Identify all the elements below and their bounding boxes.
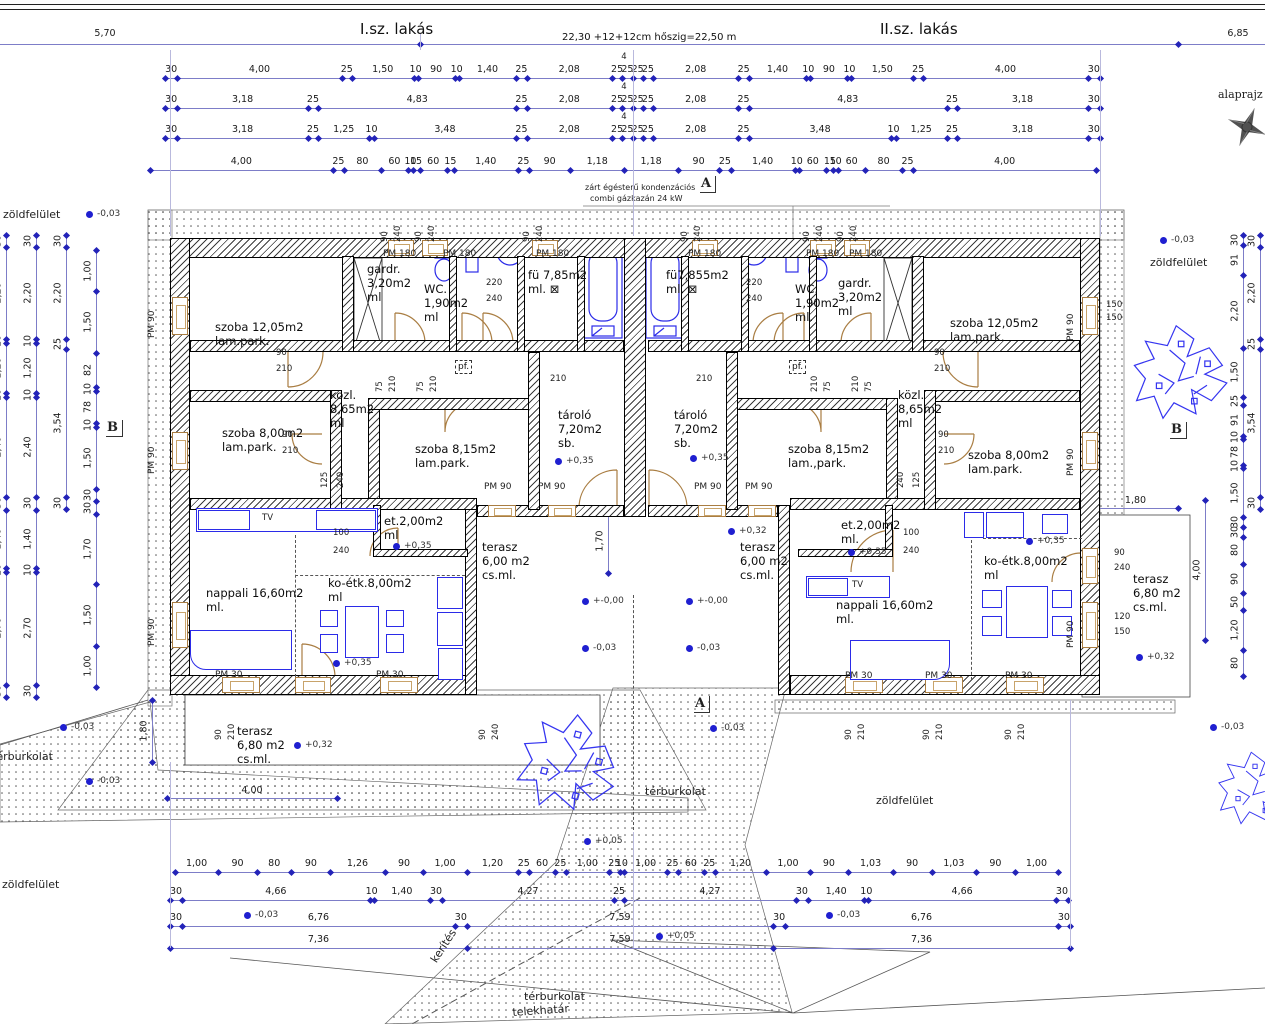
window bbox=[172, 602, 188, 648]
dim-label: 4,66 bbox=[265, 886, 286, 897]
room-label-line: ml bbox=[328, 590, 412, 604]
dim-label: 60 bbox=[427, 156, 439, 167]
extension-line bbox=[170, 762, 171, 948]
parapet-label: PM 30 bbox=[845, 671, 873, 681]
paving-strip-right bbox=[775, 700, 1175, 713]
parapet-label: PM 180 bbox=[536, 249, 569, 259]
elevation-marker bbox=[656, 933, 663, 940]
room-label-line: 6,00 m2 bbox=[482, 554, 530, 568]
room-label-line: terasz bbox=[1133, 572, 1181, 586]
dim-label: 25 bbox=[515, 94, 527, 105]
window bbox=[548, 505, 576, 517]
dim-label: 15 bbox=[444, 156, 456, 167]
dim-label: 10 bbox=[366, 886, 378, 897]
room-label-line: 6,80 m2 bbox=[1133, 586, 1181, 600]
elevation-value: +0,35 bbox=[344, 658, 372, 668]
dim-label: 1,40 bbox=[477, 64, 498, 75]
dim-label: 4,00 bbox=[231, 156, 252, 167]
small-dim-label: 90 bbox=[938, 430, 949, 440]
small-dim-label: 100 bbox=[333, 528, 349, 538]
room-label-line: 7,20m2 bbox=[674, 422, 718, 436]
room-label: nappali 16,60m2ml. bbox=[206, 586, 303, 614]
room-label-line: ml bbox=[330, 416, 374, 430]
dim-label: 90 bbox=[823, 858, 835, 869]
room-label: tároló7,20m2sb. bbox=[558, 408, 602, 450]
dim-line bbox=[152, 700, 153, 762]
parapet-label: PM 90 bbox=[1066, 448, 1076, 476]
site-label: zöldfelület bbox=[2, 878, 59, 891]
dim-label: 30 bbox=[170, 912, 182, 923]
room-label-line: szoba 8,00m2 bbox=[968, 448, 1049, 462]
small-dim-label: 210 bbox=[857, 724, 867, 740]
elevation-marker bbox=[584, 838, 591, 845]
room-label-line: szoba 8,15m2 bbox=[788, 442, 869, 456]
window bbox=[748, 505, 776, 517]
room-label-line: ml bbox=[424, 310, 468, 324]
parapet-label: PM 30 bbox=[215, 670, 243, 680]
elevation-marker bbox=[582, 598, 589, 605]
dim-label: 3,48 bbox=[809, 124, 830, 135]
dining-table bbox=[1006, 586, 1048, 638]
parapet-label: PM 90 bbox=[1066, 313, 1076, 341]
site-label: térburkolat bbox=[524, 990, 585, 1003]
dim-label: 3,54 bbox=[53, 412, 64, 433]
chair bbox=[320, 634, 338, 653]
dim-label: 10 bbox=[1230, 431, 1241, 443]
elevation-value: +0,35 bbox=[404, 541, 432, 551]
room-label-line: ml. bbox=[836, 612, 933, 626]
room-label-line: közl. bbox=[330, 388, 374, 402]
chair bbox=[1052, 590, 1072, 608]
dim-label: 7,36 bbox=[911, 934, 932, 945]
parapet-label: PM 180 bbox=[383, 249, 416, 259]
small-dim-label: 240 bbox=[393, 226, 403, 242]
room-label-line: ml bbox=[898, 416, 942, 430]
dim-label: 30 bbox=[1230, 234, 1241, 246]
dim-label: 10 bbox=[0, 389, 4, 401]
dim-label: 1,50 bbox=[1230, 362, 1241, 383]
elevation-marker bbox=[555, 458, 562, 465]
dim-label: 4,00 bbox=[994, 156, 1015, 167]
dim-label: 10 bbox=[83, 383, 94, 395]
small-dim-label: 150 bbox=[1106, 313, 1122, 323]
window bbox=[488, 505, 516, 517]
dim-label: 30 bbox=[165, 124, 177, 135]
small-dim-label: 220 bbox=[486, 278, 502, 288]
room-label-line: 6,00 m2 bbox=[740, 554, 788, 568]
small-dim-label: 100 bbox=[903, 528, 919, 538]
dim-label: 30 bbox=[1058, 912, 1070, 923]
dim-label: 25 bbox=[737, 124, 749, 135]
room-label-line: fü7,855m2 bbox=[666, 268, 729, 282]
room-label-line: 8,65m2 bbox=[898, 402, 942, 416]
insulation-band-top bbox=[148, 210, 1124, 240]
window bbox=[698, 505, 726, 517]
dim-label: 1,70 bbox=[595, 530, 606, 551]
parapet-label: PM 90 bbox=[745, 482, 773, 492]
dim-label: 50 bbox=[1230, 596, 1241, 608]
dim-label: 80 bbox=[1230, 657, 1241, 669]
dim-label: 10 bbox=[23, 389, 34, 401]
dim-label: 25 bbox=[1230, 395, 1241, 407]
dim-label: 90 bbox=[305, 858, 317, 869]
dim-label: 2,08 bbox=[559, 94, 580, 105]
dim-label: 90 bbox=[430, 64, 442, 75]
small-dim-label: 75 bbox=[416, 381, 426, 392]
room-label: gardr.3,20m2ml bbox=[367, 262, 411, 304]
room-label-line: lam.park. bbox=[950, 330, 1039, 344]
dim-label: 1,20 bbox=[730, 858, 751, 869]
tv-shelf bbox=[198, 510, 250, 530]
dim-label: 82 bbox=[83, 364, 94, 376]
elevation-value: -0,03 bbox=[1171, 235, 1194, 245]
dim-label: 1,00 bbox=[577, 858, 598, 869]
dim-label: 7,59 bbox=[609, 934, 630, 945]
dim-label: 25 bbox=[912, 64, 924, 75]
dim-label: 4,83 bbox=[837, 94, 858, 105]
stove bbox=[438, 648, 463, 680]
room-label-line: terasz bbox=[237, 724, 285, 738]
dim-label: 78 bbox=[83, 401, 94, 413]
elevation-marker bbox=[582, 645, 589, 652]
dim-label: 30 bbox=[455, 912, 467, 923]
dim-label: 25 bbox=[1247, 338, 1258, 350]
room-label-line: cs.ml. bbox=[1133, 600, 1181, 614]
elevation-marker bbox=[686, 598, 693, 605]
dim-label: 4,27 bbox=[517, 886, 538, 897]
room-label-line: cs.ml. bbox=[740, 568, 788, 582]
fridge bbox=[986, 512, 1024, 538]
dim-label: 90 bbox=[989, 858, 1001, 869]
dim-label: 4,27 bbox=[699, 886, 720, 897]
dim-label: 25 bbox=[613, 886, 625, 897]
wall bbox=[624, 238, 646, 517]
sink-cabinet bbox=[964, 512, 984, 538]
room-label-line: ko-étk.8,00m2 bbox=[984, 554, 1068, 568]
chair bbox=[386, 634, 404, 653]
small-dim-label: 210 bbox=[276, 364, 292, 374]
dim-label: 10 bbox=[0, 564, 4, 576]
room-label-line: tároló bbox=[674, 408, 718, 422]
dim-label: 60 bbox=[807, 156, 819, 167]
small-dim-label: 240 bbox=[336, 472, 346, 488]
dim-label: 25 bbox=[642, 64, 654, 75]
small-dim-label: 240 bbox=[491, 724, 501, 740]
dim-label: 1,50 bbox=[1230, 482, 1241, 503]
dim-chain-line bbox=[170, 948, 1070, 949]
parapet-label: PM 180 bbox=[849, 249, 882, 259]
chair bbox=[982, 616, 1002, 636]
dim-note: 4 bbox=[621, 112, 626, 122]
small-dim-label: 90 bbox=[922, 729, 932, 740]
sofa bbox=[190, 630, 292, 670]
dim-label: 30 bbox=[1247, 235, 1258, 247]
site-label: zöldfelület bbox=[876, 794, 933, 807]
dim-label: 2,20 bbox=[1247, 283, 1258, 304]
dim-label: 25 bbox=[515, 64, 527, 75]
dim-label: 1,40 bbox=[826, 886, 847, 897]
dim-chain-line bbox=[36, 235, 37, 697]
room-label-line: ml bbox=[367, 290, 411, 304]
dim-label: 1,20 bbox=[482, 858, 503, 869]
section-marker: B bbox=[106, 420, 123, 437]
window bbox=[172, 432, 188, 470]
elevation-value: +0,35 bbox=[701, 453, 729, 463]
dim-label: 25 bbox=[703, 858, 715, 869]
wall bbox=[342, 256, 354, 352]
insulation-band-right bbox=[1100, 210, 1124, 515]
dim-label: 30 bbox=[1088, 64, 1100, 75]
small-dim-label: 90 bbox=[478, 729, 488, 740]
dim-label: 25 bbox=[518, 858, 530, 869]
dim-label: 10 bbox=[83, 419, 94, 431]
room-label: terasz6,80 m2cs.ml. bbox=[1133, 572, 1181, 614]
small-dim-label: 125 bbox=[912, 472, 922, 488]
dim-label: 90 bbox=[693, 156, 705, 167]
small-dim-label: 240 bbox=[746, 294, 762, 304]
dim-label: 30 bbox=[23, 685, 34, 697]
elevation-marker bbox=[86, 211, 93, 218]
wall bbox=[886, 398, 898, 510]
dim-label: 25 bbox=[667, 858, 679, 869]
parapet-label: PM 90 bbox=[538, 482, 566, 492]
elevation-marker bbox=[1136, 654, 1143, 661]
room-label: WC.1,90m2ml. bbox=[795, 282, 839, 324]
window bbox=[1082, 432, 1098, 470]
small-dim-label: 90 bbox=[680, 231, 690, 242]
room-label-line: WC. bbox=[795, 282, 839, 296]
dim-label: 91 bbox=[1230, 414, 1241, 426]
wall bbox=[928, 390, 1080, 402]
dim-label: 30 bbox=[430, 886, 442, 897]
dim-label: 1,18 bbox=[641, 156, 662, 167]
dim-label: 90 bbox=[398, 858, 410, 869]
dim-label: 1,40 bbox=[475, 156, 496, 167]
dim-label: 10 bbox=[860, 886, 872, 897]
dim-label: 25 bbox=[946, 124, 958, 135]
elevation-value: +0,32 bbox=[739, 526, 767, 536]
dim-label: 1,40 bbox=[0, 528, 4, 549]
room-label-line: lam.park. bbox=[415, 456, 496, 470]
dim-label: 10 bbox=[830, 156, 842, 167]
dim-label: 90 bbox=[232, 858, 244, 869]
elevation-marker bbox=[690, 455, 697, 462]
room-label-line: 7,20m2 bbox=[558, 422, 602, 436]
room-label-line: lam.park. bbox=[968, 462, 1049, 476]
dim-label: 10 bbox=[887, 124, 899, 135]
room-label-line: 3,20m2 bbox=[367, 276, 411, 290]
dim-label: 10 bbox=[843, 64, 855, 75]
small-dim-label: 210 bbox=[227, 724, 237, 740]
room-label: et.2,00m2ml bbox=[384, 514, 443, 542]
window bbox=[1082, 602, 1098, 648]
dim-label: 10 bbox=[1230, 460, 1241, 472]
small-dim-label: 240 bbox=[427, 226, 437, 242]
dim-chain-line bbox=[96, 250, 97, 687]
small-dim-label: 150 bbox=[1114, 627, 1130, 637]
dim-chain-line bbox=[170, 900, 1068, 901]
elevation-marker bbox=[333, 660, 340, 667]
room-label: fü 7,85m2ml. ⊠ bbox=[528, 268, 587, 296]
elevation-value: -0,03 bbox=[837, 910, 860, 920]
room-label-line: 8,65m2 bbox=[330, 402, 374, 416]
dim-label: 30 bbox=[773, 912, 785, 923]
dim-label: 2,40 bbox=[0, 437, 4, 458]
wall bbox=[368, 398, 540, 410]
dim-label: 30 bbox=[1247, 497, 1258, 509]
dim-label: 25 bbox=[307, 124, 319, 135]
room-label-line: közl. bbox=[898, 388, 942, 402]
dim-label: 2,20 bbox=[23, 283, 34, 304]
dim-label: 4,00 bbox=[241, 785, 262, 796]
small-dim-label: 210 bbox=[429, 376, 439, 392]
elevation-value: +0,35 bbox=[1037, 536, 1065, 546]
room-label-line: ml bbox=[838, 304, 882, 318]
elevation-marker bbox=[728, 528, 735, 535]
room-label-line: nappali 16,60m2 bbox=[836, 598, 933, 612]
dim-label: 25 bbox=[946, 94, 958, 105]
section-marker: A bbox=[694, 696, 710, 713]
elevation-value: +-0,00 bbox=[697, 596, 728, 606]
dim-label: 1,00 bbox=[83, 260, 94, 281]
elevation-value: +-0,00 bbox=[593, 596, 624, 606]
dim-label: 30 bbox=[83, 502, 94, 514]
dim-label: 90 bbox=[823, 64, 835, 75]
wall bbox=[912, 256, 924, 352]
room-label: terasz6,00 m2cs.ml. bbox=[482, 540, 530, 582]
dim-label: 1,00 bbox=[1026, 858, 1047, 869]
dim-label: 30 bbox=[0, 497, 4, 509]
dim-label: 4,83 bbox=[407, 94, 428, 105]
dim-label: 25 bbox=[517, 156, 529, 167]
dim-label: 60 bbox=[846, 156, 858, 167]
small-dim-label: 90 bbox=[380, 231, 390, 242]
small-dim-label: 240 bbox=[896, 472, 906, 488]
room-label-line: ko-étk.8,00m2 bbox=[328, 576, 412, 590]
room-label: terasz6,00 m2cs.ml. bbox=[740, 540, 788, 582]
dim-label: 91 bbox=[1230, 254, 1241, 266]
small-dim-label: 90 bbox=[1114, 548, 1125, 558]
room-label-line: cs.ml. bbox=[237, 752, 285, 766]
small-dim-label: 210 bbox=[388, 376, 398, 392]
dim-label: 1,26 bbox=[347, 858, 368, 869]
section-marker: A bbox=[700, 176, 716, 193]
dim-label: 30 bbox=[0, 685, 4, 697]
dim-label: 30 bbox=[1056, 886, 1068, 897]
dim-label: 25 bbox=[642, 124, 654, 135]
room-label: fü7,855m2ml. ⊠ bbox=[666, 268, 729, 296]
small-dim-label: 90 bbox=[522, 231, 532, 242]
elevation-marker bbox=[1026, 538, 1033, 545]
niche-label: pf. bbox=[455, 360, 472, 374]
dim-label: 25 bbox=[738, 64, 750, 75]
small-dim-label: 210 bbox=[851, 376, 861, 392]
elevation-value: -0,03 bbox=[697, 643, 720, 653]
room-label-line: 6,80 m2 bbox=[237, 738, 285, 752]
parapet-label: PM 30 bbox=[1005, 671, 1033, 681]
dim-label: 25 bbox=[515, 124, 527, 135]
small-dim-label: 210 bbox=[1017, 724, 1027, 740]
dim-label: 1,80 bbox=[1125, 495, 1146, 506]
small-dim-label: 210 bbox=[550, 374, 566, 384]
room-label-line: sb. bbox=[558, 436, 602, 450]
dim-label: 1,00 bbox=[635, 858, 656, 869]
dim-label: 6,76 bbox=[308, 912, 329, 923]
dim-label: 30 bbox=[23, 497, 34, 509]
elevation-value: +0,35 bbox=[566, 456, 594, 466]
elevation-marker bbox=[848, 549, 855, 556]
dim-label: 30 bbox=[1230, 526, 1241, 538]
small-dim-label: 150 bbox=[1106, 300, 1122, 310]
dim-label: 2,08 bbox=[559, 124, 580, 135]
room-label: szoba 8,15m2lam.park. bbox=[415, 442, 496, 470]
room-label-line: ml. bbox=[841, 532, 900, 546]
window bbox=[295, 677, 331, 693]
room-label-line: terasz bbox=[740, 540, 788, 554]
dim-label: 1,03 bbox=[860, 858, 881, 869]
window bbox=[1082, 297, 1098, 335]
small-dim-label: 90 bbox=[1004, 729, 1014, 740]
dim-label: 90 bbox=[906, 858, 918, 869]
dim-label: 3,18 bbox=[232, 124, 253, 135]
dim-chain-line bbox=[170, 926, 1070, 927]
dim-label: 60 bbox=[388, 156, 400, 167]
dim-label: 10 bbox=[616, 858, 628, 869]
small-dim-label: 210 bbox=[934, 364, 950, 374]
parapet-label: PM 180 bbox=[443, 249, 476, 259]
parapet-label: PM 30 bbox=[376, 670, 404, 680]
parapet-label: PM 90 bbox=[147, 446, 157, 474]
floor-plan-canvas: 5,70 I.sz. lakás 22,30 +12+12cm hőszig=2… bbox=[0, 0, 1265, 1024]
parapet-label: PM 180 bbox=[806, 249, 839, 259]
dim-label: 3,18 bbox=[232, 94, 253, 105]
small-dim-label: 125 bbox=[320, 472, 330, 488]
room-label: közl.8,65m2ml bbox=[330, 388, 374, 430]
dim-label: 10 bbox=[802, 64, 814, 75]
elevation-value: -0,03 bbox=[71, 722, 94, 732]
room-label-line: szoba 12,05m2 bbox=[950, 316, 1039, 330]
dim-label: 7,59 bbox=[609, 912, 630, 923]
dim-label: 1,50 bbox=[83, 312, 94, 333]
room-label: et.2,00m2ml. bbox=[841, 518, 900, 546]
wall bbox=[465, 505, 477, 695]
room-label: nappali 16,60m2ml. bbox=[836, 598, 933, 626]
room-label-line: tároló bbox=[558, 408, 602, 422]
dim-label: 10 bbox=[410, 64, 422, 75]
parapet-label: PM 90 bbox=[147, 310, 157, 338]
dim-label: 1,70 bbox=[83, 538, 94, 559]
small-dim-label: 220 bbox=[746, 278, 762, 288]
room-label-line: ml. bbox=[206, 600, 303, 614]
dim-label: 1,25 bbox=[911, 124, 932, 135]
dim-line bbox=[1093, 508, 1178, 509]
small-dim-label: 75 bbox=[864, 381, 874, 392]
dim-label: 1,00 bbox=[434, 858, 455, 869]
parapet-label: PM 90 bbox=[694, 482, 722, 492]
dim-label: 1,03 bbox=[943, 858, 964, 869]
small-dim-label: 75 bbox=[375, 381, 385, 392]
small-dim-label: TV bbox=[262, 513, 273, 523]
small-dim-label: 90 bbox=[934, 348, 945, 358]
room-label: gardr.3,20m2ml bbox=[838, 276, 882, 318]
small-dim-label: 90 bbox=[802, 231, 812, 242]
dim-label: 1,40 bbox=[752, 156, 773, 167]
room-label-line: nappali 16,60m2 bbox=[206, 586, 303, 600]
dim-label: 2,08 bbox=[685, 94, 706, 105]
small-dim-label: 210 bbox=[810, 376, 820, 392]
small-dim-label: 90 bbox=[276, 348, 287, 358]
elevation-marker bbox=[686, 645, 693, 652]
